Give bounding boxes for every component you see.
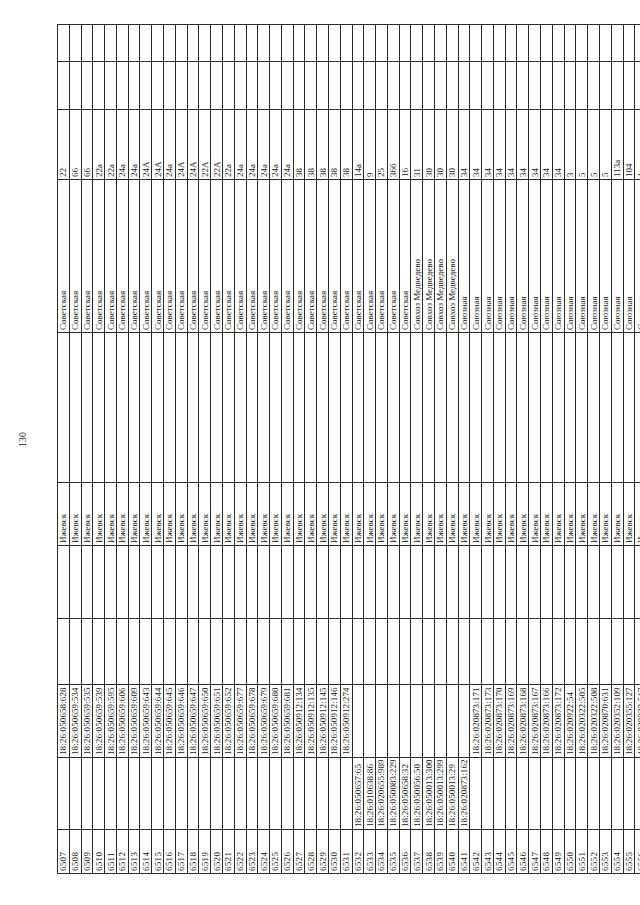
- cell-house: 34: [517, 110, 529, 180]
- cell-city: Ижевск: [470, 483, 482, 546]
- cell-empty: [446, 25, 458, 62]
- cell-cadastral-b: 18:26:050659:644: [152, 685, 164, 758]
- cell-cadastral-b: 18:26:050659:539: [93, 685, 105, 758]
- cell-street: Союзная: [576, 180, 588, 333]
- cell-empty: [211, 25, 223, 62]
- cell-cadastral-a: [175, 758, 187, 830]
- cell-empty: [458, 62, 470, 110]
- cell-house: 14а: [352, 110, 364, 180]
- cell-cadastral-a: [187, 758, 199, 830]
- table-row: 653518:26:050083:229ИжевскСоветская36б: [387, 25, 399, 874]
- cell-cadastral-a: 18:26:020655:989: [376, 758, 388, 830]
- cell-house: 3: [564, 110, 576, 180]
- cell-number: 6549: [552, 830, 564, 874]
- cell-number: 6519: [199, 830, 211, 874]
- cell-cadastral-a: [58, 758, 70, 830]
- cell-empty: [352, 62, 364, 110]
- cell-number: 6510: [93, 830, 105, 874]
- cell-number: 6554: [611, 830, 623, 874]
- cell-cadastral-b: 18:26:050659:652: [222, 685, 234, 758]
- cell-empty: [541, 619, 553, 685]
- page-number: 130: [17, 432, 28, 447]
- cell-city: Ижевск: [552, 483, 564, 546]
- cell-empty: [576, 25, 588, 62]
- cell-empty: [175, 546, 187, 619]
- cell-cadastral-b: 18:26:050659:595: [105, 685, 117, 758]
- cell-number: 6540: [446, 830, 458, 874]
- cell-empty: [246, 62, 258, 110]
- cell-empty: [458, 619, 470, 685]
- cell-empty: [576, 619, 588, 685]
- cell-empty: [611, 25, 623, 62]
- cell-street: Советская: [152, 180, 164, 333]
- cell-cadastral-b: 18:26:020873:170: [493, 685, 505, 758]
- cell-empty: [152, 25, 164, 62]
- cell-number: 6535: [387, 830, 399, 874]
- cell-street: Совхоз Медведево: [446, 180, 458, 333]
- cell-house: 24А: [152, 110, 164, 180]
- cell-empty: [234, 546, 246, 619]
- table-row: 651918:26:050659:650ИжевскСоветская22А: [199, 25, 211, 874]
- cell-cadastral-a: [222, 758, 234, 830]
- cell-empty: [222, 619, 234, 685]
- cell-cadastral-a: [493, 758, 505, 830]
- table-row: 654418:26:020873:170ИжевскСоюзная34: [493, 25, 505, 874]
- cell-cadastral-b: 18:26:050659:606: [116, 685, 128, 758]
- cell-empty: [505, 619, 517, 685]
- cell-empty: [246, 25, 258, 62]
- cell-street: Советская: [328, 180, 340, 333]
- cell-empty: [387, 25, 399, 62]
- cell-empty: [411, 62, 423, 110]
- registry-table-body: 650718:26:050658:628ИжевскСоветская22650…: [58, 25, 640, 874]
- cell-city: Ижевск: [399, 483, 411, 546]
- cell-empty: [317, 546, 329, 619]
- cell-empty: [164, 619, 176, 685]
- cell-city: Ижевск: [58, 483, 70, 546]
- cell-empty: [411, 333, 423, 483]
- cell-street: Союзная: [482, 180, 494, 333]
- table-row: 651718:26:050659:646ИжевскСоветская24А: [175, 25, 187, 874]
- cell-cadastral-b: 18:26:020352:109: [611, 685, 623, 758]
- cell-empty: [635, 546, 640, 619]
- cell-empty: [293, 25, 305, 62]
- cell-number: 6542: [470, 830, 482, 874]
- cell-cadastral-a: 18:26:050013:299: [435, 758, 447, 830]
- cell-empty: [517, 619, 529, 685]
- cell-empty: [305, 62, 317, 110]
- table-row: 651418:26:050659:643ИжевскСоветская24А: [140, 25, 152, 874]
- table-row: 651618:26:050659:645ИжевскСоветская24а: [164, 25, 176, 874]
- cell-street: Советская: [258, 180, 270, 333]
- cell-number: 6509: [81, 830, 93, 874]
- table-row: 653318:26:010638:86ИжевскСоветская9: [364, 25, 376, 874]
- table-row: 655518:26:020355:127ИжевскСоюзная104: [623, 25, 635, 874]
- cell-empty: [69, 619, 81, 685]
- cell-number: 6541: [458, 830, 470, 874]
- cell-empty: [482, 62, 494, 110]
- cell-empty: [611, 333, 623, 483]
- cell-empty: [234, 62, 246, 110]
- cell-cadastral-b: 18:26:020870:631: [599, 685, 611, 758]
- cell-number: 6553: [599, 830, 611, 874]
- cell-cadastral-a: [93, 758, 105, 830]
- cell-empty: [399, 62, 411, 110]
- cell-empty: [387, 333, 399, 483]
- cell-street: Советская: [270, 180, 282, 333]
- cell-empty: [376, 62, 388, 110]
- cell-number: 6515: [152, 830, 164, 874]
- table-row: 654318:26:020873:173ИжевскСоюзная34: [482, 25, 494, 874]
- cell-empty: [152, 62, 164, 110]
- cell-city: Ижевск: [199, 483, 211, 546]
- cell-house: 24а: [128, 110, 140, 180]
- cell-street: Советская: [317, 180, 329, 333]
- cell-number: 6522: [234, 830, 246, 874]
- cell-city: Ижевск: [116, 483, 128, 546]
- cell-house: 113а: [611, 110, 623, 180]
- cell-cadastral-a: [611, 758, 623, 830]
- cell-empty: [599, 546, 611, 619]
- cell-house: 38: [305, 110, 317, 180]
- cell-empty: [281, 62, 293, 110]
- cell-empty: [611, 619, 623, 685]
- cell-empty: [588, 333, 600, 483]
- cell-house: 24А: [187, 110, 199, 180]
- cell-empty: [399, 546, 411, 619]
- cell-cadastral-a: [281, 758, 293, 830]
- cell-empty: [564, 25, 576, 62]
- table-row: 650918:26:050659:535ИжевскСоветская66: [81, 25, 93, 874]
- cell-number: 6525: [270, 830, 282, 874]
- cell-number: 6550: [564, 830, 576, 874]
- cell-street: Советская: [376, 180, 388, 333]
- cell-city: Ижевск: [128, 483, 140, 546]
- cell-empty: [623, 333, 635, 483]
- cell-empty: [175, 25, 187, 62]
- cell-number: 6552: [588, 830, 600, 874]
- cell-empty: [435, 546, 447, 619]
- cell-empty: [423, 619, 435, 685]
- cell-empty: [246, 619, 258, 685]
- cell-cadastral-b: [446, 685, 458, 758]
- cell-empty: [588, 62, 600, 110]
- cell-cadastral-b: 18:26:050658:628: [58, 685, 70, 758]
- cell-empty: [529, 62, 541, 110]
- cell-empty: [364, 25, 376, 62]
- cell-empty: [81, 25, 93, 62]
- cell-empty: [552, 62, 564, 110]
- cell-empty: [222, 25, 234, 62]
- cell-empty: [623, 619, 635, 685]
- cell-empty: [293, 546, 305, 619]
- cell-cadastral-a: [599, 758, 611, 830]
- cell-street: Союзная: [552, 180, 564, 333]
- cell-number: 6533: [364, 830, 376, 874]
- cell-street: Совхоз Медведево: [411, 180, 423, 333]
- table-row: 655018:26:020922:54ИжевскСоюзная3: [564, 25, 576, 874]
- cell-city: Ижевск: [246, 483, 258, 546]
- cell-empty: [140, 25, 152, 62]
- cell-empty: [588, 25, 600, 62]
- cell-house: 16: [399, 110, 411, 180]
- cell-city: Ижевск: [164, 483, 176, 546]
- cell-number: 6537: [411, 830, 423, 874]
- cell-cadastral-b: [364, 685, 376, 758]
- cell-empty: [340, 62, 352, 110]
- cell-empty: [93, 619, 105, 685]
- cell-empty: [293, 619, 305, 685]
- cell-empty: [128, 62, 140, 110]
- cell-empty: [234, 25, 246, 62]
- cell-cadastral-b: 18:26:050659:646: [175, 685, 187, 758]
- cell-empty: [352, 546, 364, 619]
- table-row: 654718:26:020873:167ИжевскСоюзная34: [529, 25, 541, 874]
- cell-house: 24а: [164, 110, 176, 180]
- cell-empty: [529, 619, 541, 685]
- cell-city: Ижевск: [328, 483, 340, 546]
- cell-house: 38: [293, 110, 305, 180]
- cell-cadastral-a: 18:26:050013:29: [446, 758, 458, 830]
- cell-cadastral-b: 18:26:050912:146: [328, 685, 340, 758]
- cell-empty: [317, 619, 329, 685]
- cell-number: 6534: [376, 830, 388, 874]
- cell-house: 31: [411, 110, 423, 180]
- cell-empty: [470, 25, 482, 62]
- cell-empty: [187, 333, 199, 483]
- cell-number: 6539: [435, 830, 447, 874]
- cell-cadastral-b: [352, 685, 364, 758]
- cell-street: Союзная: [611, 180, 623, 333]
- cell-empty: [552, 333, 564, 483]
- cell-city: Ижевск: [411, 483, 423, 546]
- cell-empty: [281, 546, 293, 619]
- cell-number: 6513: [128, 830, 140, 874]
- cell-empty: [599, 25, 611, 62]
- cell-empty: [411, 25, 423, 62]
- cell-number: 6520: [211, 830, 223, 874]
- cell-empty: [564, 546, 576, 619]
- cell-cadastral-b: 18:26:020922:54: [564, 685, 576, 758]
- cell-city: Ижевск: [222, 483, 234, 546]
- cell-cadastral-b: [399, 685, 411, 758]
- cell-street: Советская: [128, 180, 140, 333]
- cell-city: Ижевск: [352, 483, 364, 546]
- cell-street: Советская: [246, 180, 258, 333]
- cell-empty: [199, 62, 211, 110]
- cell-empty: [482, 546, 494, 619]
- cell-empty: [58, 25, 70, 62]
- cell-cadastral-b: 18:26:050659:651: [211, 685, 223, 758]
- table-row: 651818:26:050659:647ИжевскСоветская24А: [187, 25, 199, 874]
- cell-empty: [482, 333, 494, 483]
- cell-house: 66: [69, 110, 81, 180]
- cell-cadastral-a: [470, 758, 482, 830]
- table-row: 652418:26:050659:679ИжевскСоветская24а: [258, 25, 270, 874]
- table-row: 653818:26:050013:300ИжевскСовхоз Медведе…: [423, 25, 435, 874]
- table-row: 652718:26:050912:134ИжевскСоветская38: [293, 25, 305, 874]
- cell-street: Советская: [58, 180, 70, 333]
- cell-number: 6523: [246, 830, 258, 874]
- cell-empty: [328, 25, 340, 62]
- cell-empty: [599, 619, 611, 685]
- cell-empty: [164, 25, 176, 62]
- cell-cadastral-b: 18:26:020873:171: [470, 685, 482, 758]
- cell-empty: [576, 62, 588, 110]
- cell-empty: [328, 546, 340, 619]
- cell-empty: [187, 25, 199, 62]
- cell-cadastral-a: [81, 758, 93, 830]
- cell-empty: [317, 62, 329, 110]
- cell-house: 30: [446, 110, 458, 180]
- cell-house: 5: [576, 110, 588, 180]
- cell-empty: [399, 619, 411, 685]
- table-row: 651318:26:050659:609ИжевскСоветская24а: [128, 25, 140, 874]
- cell-empty: [482, 25, 494, 62]
- cell-cadastral-b: 18:26:020873:173: [482, 685, 494, 758]
- cell-empty: [635, 333, 640, 483]
- cell-cadastral-b: 18:26:050659:535: [81, 685, 93, 758]
- cell-city: Ижевск: [564, 483, 576, 546]
- cell-city: Ижевск: [541, 483, 553, 546]
- cell-street: Совхоз Медведево: [423, 180, 435, 333]
- cell-city: Ижевск: [376, 483, 388, 546]
- cell-empty: [493, 619, 505, 685]
- cell-empty: [423, 25, 435, 62]
- cell-number: 6511: [105, 830, 117, 874]
- cell-street: Советская: [387, 180, 399, 333]
- cell-house: 66: [81, 110, 93, 180]
- cell-empty: [470, 546, 482, 619]
- cell-house: 34: [493, 110, 505, 180]
- cell-cadastral-b: 18:26:050659:679: [258, 685, 270, 758]
- cell-empty: [222, 333, 234, 483]
- cell-empty: [58, 546, 70, 619]
- cell-house: 5: [588, 110, 600, 180]
- cell-empty: [328, 619, 340, 685]
- table-row: 653418:26:020655:989ИжевскСоветская25: [376, 25, 388, 874]
- cell-empty: [541, 333, 553, 483]
- cell-cadastral-b: 18:26:050912:134: [293, 685, 305, 758]
- cell-city: Ижевск: [140, 483, 152, 546]
- table-row: 651118:26:050659:595ИжевскСоветская22а: [105, 25, 117, 874]
- cell-house: 34: [505, 110, 517, 180]
- cell-street: Советская: [93, 180, 105, 333]
- cell-number: 6530: [328, 830, 340, 874]
- cell-empty: [281, 25, 293, 62]
- cell-city: Ижевск: [211, 483, 223, 546]
- cell-cadastral-b: 18:26:020322:508: [588, 685, 600, 758]
- cell-city: Ижевск: [576, 483, 588, 546]
- cell-empty: [281, 619, 293, 685]
- cell-empty: [69, 25, 81, 62]
- table-row: 654618:26:020873:168ИжевскСоюзная34: [517, 25, 529, 874]
- cell-empty: [234, 333, 246, 483]
- cell-empty: [164, 546, 176, 619]
- cell-cadastral-a: [258, 758, 270, 830]
- table-row: 654518:26:020873:169ИжевскСоюзная34: [505, 25, 517, 874]
- cell-number: 6555: [623, 830, 635, 874]
- cell-city: Ижевск: [493, 483, 505, 546]
- cell-empty: [105, 62, 117, 110]
- cell-number: 6551: [576, 830, 588, 874]
- cell-cadastral-b: 18:26:050659:643: [140, 685, 152, 758]
- cell-empty: [588, 619, 600, 685]
- cell-street: Совхоз Медведево: [435, 180, 447, 333]
- rotated-registry-table: 650718:26:050658:628ИжевскСоветская22650…: [57, 25, 640, 874]
- cell-number: 6544: [493, 830, 505, 874]
- cell-number: 6545: [505, 830, 517, 874]
- cell-number: 6531: [340, 830, 352, 874]
- table-row: 651218:26:050659:606ИжевскСоветская24а: [116, 25, 128, 874]
- cell-cadastral-a: [564, 758, 576, 830]
- cell-empty: [541, 25, 553, 62]
- table-row: 653718:26:050056:50ИжевскСовхоз Медведев…: [411, 25, 423, 874]
- cell-house: 24а: [234, 110, 246, 180]
- cell-empty: [175, 62, 187, 110]
- cell-house: 5: [599, 110, 611, 180]
- cell-city: Ижевск: [599, 483, 611, 546]
- cell-city: Ижевск: [293, 483, 305, 546]
- cell-cadastral-b: 18:26:050659:645: [164, 685, 176, 758]
- cell-city: Ижевск: [505, 483, 517, 546]
- cell-number: 6512: [116, 830, 128, 874]
- cell-empty: [387, 546, 399, 619]
- cell-cadastral-b: 18:26:050659:677: [234, 685, 246, 758]
- cell-city: Ижевск: [588, 483, 600, 546]
- cell-street: Советская: [140, 180, 152, 333]
- cell-empty: [105, 546, 117, 619]
- cell-empty: [599, 62, 611, 110]
- cell-empty: [305, 546, 317, 619]
- cell-cadastral-b: 18:26:050659:650: [199, 685, 211, 758]
- cell-number: 6536: [399, 830, 411, 874]
- cell-street: Союзная: [599, 180, 611, 333]
- cell-city: Ижевск: [387, 483, 399, 546]
- cell-house: 24а: [258, 110, 270, 180]
- cell-empty: [458, 333, 470, 483]
- cell-empty: [81, 62, 93, 110]
- cell-empty: [317, 25, 329, 62]
- cell-cadastral-b: 18:26:020355:127: [623, 685, 635, 758]
- cell-empty: [270, 25, 282, 62]
- cell-number: 6543: [482, 830, 494, 874]
- cell-empty: [128, 546, 140, 619]
- cell-house: 24А: [175, 110, 187, 180]
- cell-empty: [352, 619, 364, 685]
- cell-house: 1а: [635, 110, 640, 180]
- cell-empty: [258, 62, 270, 110]
- cell-cadastral-a: [128, 758, 140, 830]
- cell-empty: [116, 25, 128, 62]
- cell-cadastral-a: 18:26:050056:50: [411, 758, 423, 830]
- cell-number: 6527: [293, 830, 305, 874]
- cell-empty: [211, 62, 223, 110]
- cell-empty: [199, 25, 211, 62]
- cell-empty: [69, 62, 81, 110]
- cell-cadastral-b: 18:26:020873:172: [552, 685, 564, 758]
- cell-empty: [293, 333, 305, 483]
- cell-empty: [552, 546, 564, 619]
- cell-empty: [305, 25, 317, 62]
- cell-empty: [175, 619, 187, 685]
- cell-number: 6518: [187, 830, 199, 874]
- cell-empty: [458, 25, 470, 62]
- cell-cadastral-a: [199, 758, 211, 830]
- cell-street: Советская: [116, 180, 128, 333]
- cell-cadastral-b: [458, 685, 470, 758]
- cell-cadastral-a: [340, 758, 352, 830]
